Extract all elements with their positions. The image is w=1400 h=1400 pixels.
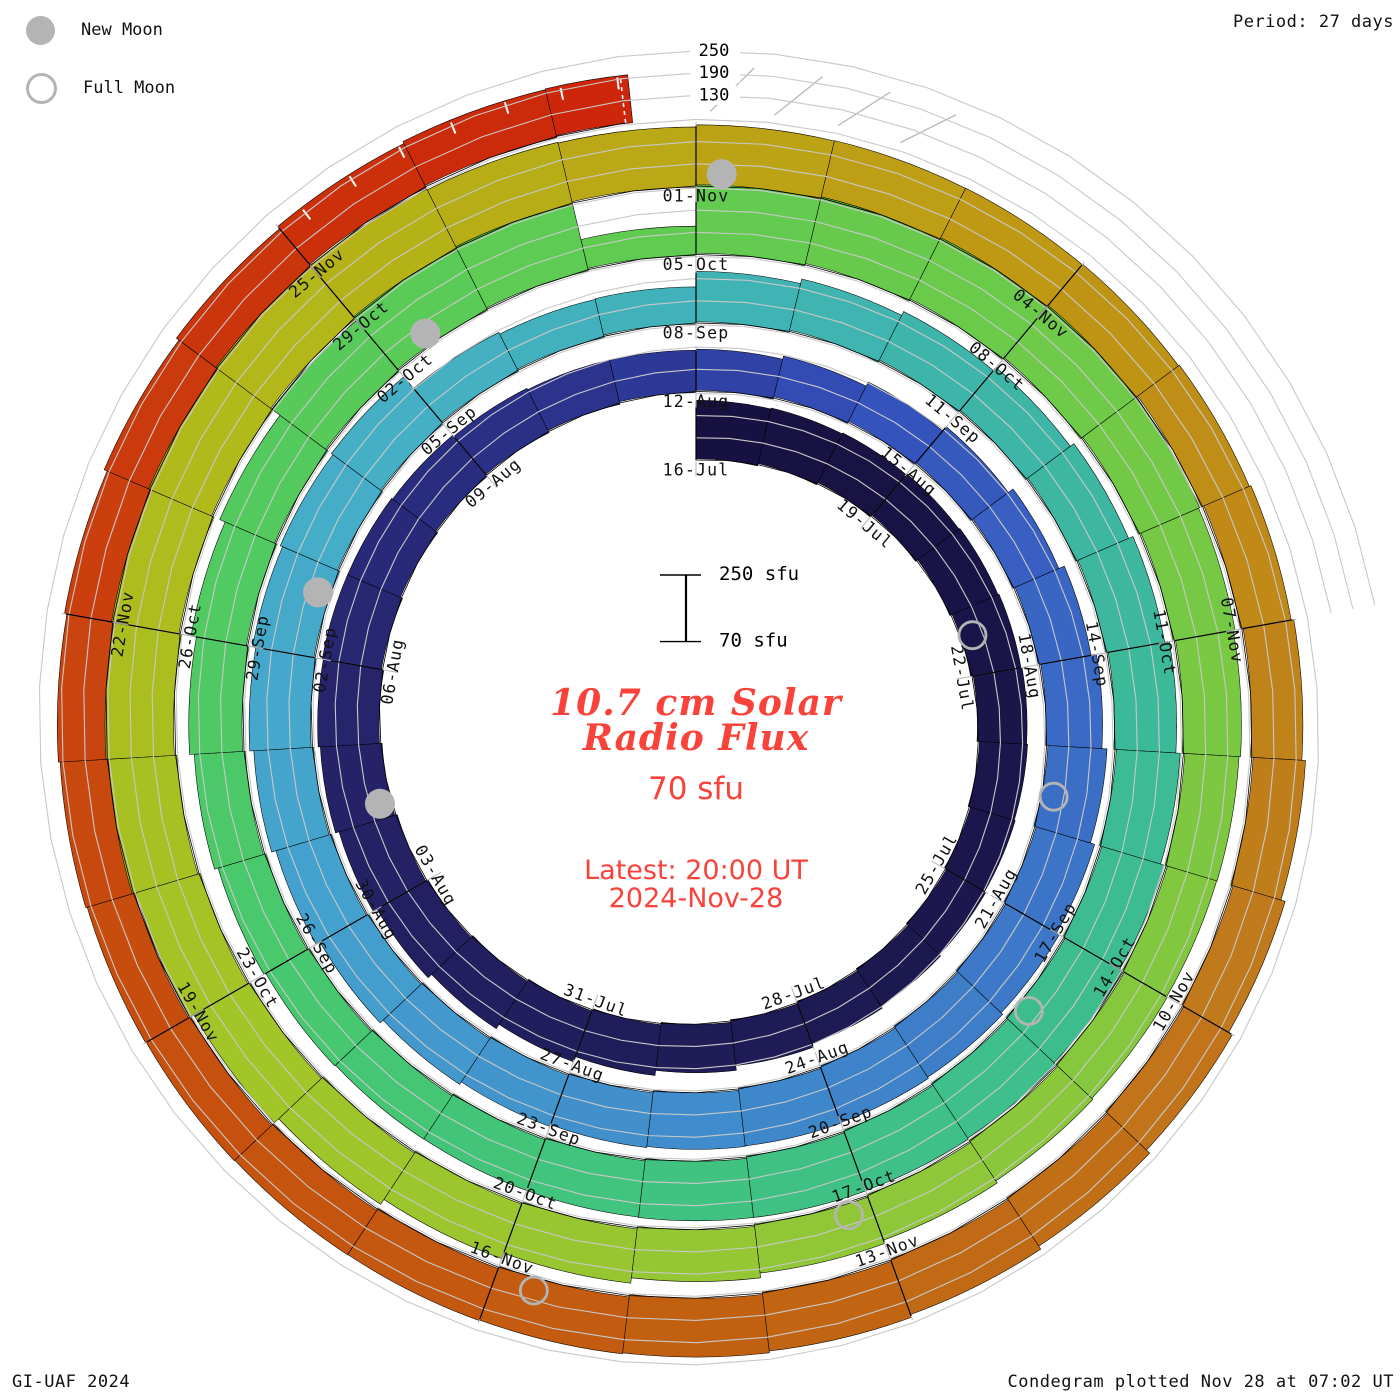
axis-tick-250: 250	[699, 41, 730, 61]
flux-bar-day-134	[545, 75, 632, 136]
new-moon-marker	[365, 789, 395, 819]
new-moon-label: New Moon	[81, 20, 163, 40]
date-label-12-Aug: 12-Aug	[663, 392, 730, 411]
axis-tick-190: 190	[699, 63, 730, 83]
date-label-16-Jul: 16-Jul	[663, 461, 730, 480]
new-moon-marker	[707, 159, 737, 189]
flux-scalebar: 250 sfu70 sfu	[660, 563, 799, 652]
full-moon-icon	[26, 73, 57, 104]
period-annotation: Period: 27 days	[1233, 12, 1394, 32]
post-end-hatch	[774, 76, 822, 115]
scalebar-top-label: 250 sfu	[719, 563, 799, 585]
flux-bar-day-67	[638, 1158, 753, 1221]
full-moon-label: Full Moon	[83, 78, 175, 98]
scalebar-bottom-label: 70 sfu	[719, 630, 788, 652]
flux-bar-day-74	[189, 637, 249, 755]
flux-bar-day-120	[762, 1261, 911, 1351]
condegram-spiral-chart: 16-Jul19-Jul22-Jul25-Jul28-Jul31-Jul03-A…	[0, 0, 1400, 1400]
flux-bar-day-121	[623, 1294, 770, 1357]
flux-bar-day-94	[631, 1226, 760, 1281]
new-moon-marker	[303, 577, 333, 607]
flux-bar-day-13	[656, 1022, 737, 1072]
flux-bar-day-52	[500, 299, 604, 369]
flux-bar-day-40	[647, 1090, 746, 1149]
condegram-page: 16-Jul19-Jul22-Jul25-Jul28-Jul31-Jul03-A…	[0, 0, 1400, 1400]
post-end-hatch	[838, 92, 890, 125]
radial-axis-labels: 250190130	[690, 41, 740, 105]
date-label-05-Oct: 05-Oct	[663, 255, 730, 274]
legend-new-moon: New Moon	[26, 8, 175, 52]
flux-bar-day-34	[1034, 746, 1107, 844]
date-label-08-Sep: 08-Sep	[663, 324, 730, 343]
credit-left: GI-UAF 2024	[12, 1372, 130, 1392]
legend-full-moon: Full Moon	[26, 66, 175, 110]
new-moon-marker	[410, 319, 440, 349]
date-label-01-Nov: 01-Nov	[663, 187, 730, 206]
flux-bar-day-46	[254, 747, 329, 852]
new-moon-icon	[26, 16, 55, 45]
axis-tick-130: 130	[699, 85, 730, 105]
moon-legend: New Moon Full Moon	[26, 8, 175, 124]
credit-right: Condegram plotted Nov 28 at 07:02 UT	[1008, 1372, 1394, 1392]
